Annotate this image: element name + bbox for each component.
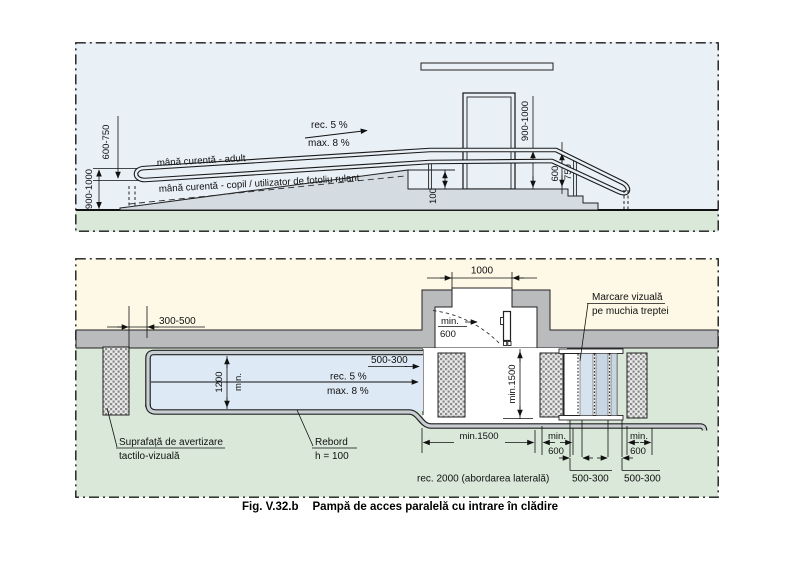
dim-step-mark2: 500-300 [624, 474, 661, 485]
tactile-strip-landing-right [540, 353, 563, 417]
dim-landing-width: min.1500 [459, 431, 498, 442]
dim-side-clear1-val: 600 [548, 446, 564, 457]
ground-strip [76, 210, 718, 231]
approach-label: rec. 2000 (abordarea laterală) [417, 474, 549, 485]
plan-drawing: 1000 min. 600 300-500 1200 min. 500-300 … [75, 258, 719, 498]
dim-left-total-height: 900-1000 [84, 169, 95, 209]
dim-left-rail-height: 600-750 [101, 125, 112, 160]
dim-top-strip: 500-300 [371, 355, 408, 366]
warning-label-1: Suprafață de avertizare [119, 437, 223, 448]
dim-landing-depth: min.1500 [507, 364, 518, 403]
plan-slope-max: max. 8 % [327, 386, 369, 397]
stairs-plan [559, 349, 623, 420]
tactile-strip-stairs-right [627, 353, 647, 418]
dim-side-clear2-min: min. [630, 431, 648, 442]
canopy [421, 63, 553, 70]
figure-v32b: 600-750 900-1000 rec. 5 % max. 8 % 900-1… [0, 0, 800, 565]
elevation-drawing: 600-750 900-1000 rec. 5 % max. 8 % 900-1… [75, 42, 719, 232]
figure-number: Fig. V.32.b [242, 501, 298, 513]
dim-door-clear-min: min. [441, 316, 459, 327]
figure-title: Pampă de acces paralelă cu intrare în cl… [313, 501, 558, 513]
slope-max-label: max. 8 % [308, 138, 350, 149]
dim-door-width: 1000 [471, 266, 494, 277]
warning-label-2: tactilo-vizuală [119, 451, 180, 462]
dim-edge-offset: 300-500 [159, 316, 196, 327]
marking-label-1: Marcare vizuală [592, 292, 663, 303]
door-elevation [463, 93, 515, 189]
tactile-strip-ramp-start [103, 347, 129, 415]
tactile-strip-landing-left [438, 353, 465, 417]
door-handle [501, 318, 504, 325]
slope-rec-label: rec. 5 % [311, 120, 348, 131]
dim-ramp-width-val: 1200 [214, 371, 225, 392]
dim-side-clear2-val: 600 [630, 446, 646, 457]
plan-slope-rec: rec. 5 % [330, 372, 367, 383]
figure-caption: Fig. V.32.bPampă de acces paralelă cu in… [0, 501, 800, 513]
dim-ramp-width-min: min. [233, 373, 244, 391]
dim-curb-height: 100 [428, 188, 439, 204]
dim-side-clear1-min: min. [548, 431, 566, 442]
marking-label-2: pe muchia treptei [592, 306, 669, 317]
rebord-label-2: h = 100 [315, 451, 349, 462]
dim-door-clear-val: 600 [440, 329, 456, 340]
rebord-label-1: Rebord [315, 437, 348, 448]
dim-step-mark1: 500-300 [572, 474, 609, 485]
dim-door-rail-height: 900-1000 [520, 101, 531, 141]
